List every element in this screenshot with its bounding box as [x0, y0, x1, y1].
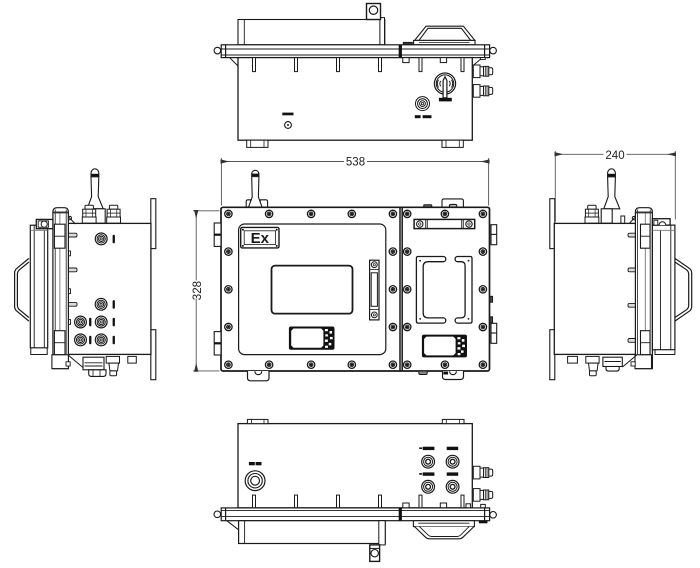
svg-text:538: 538 [346, 157, 365, 169]
svg-text:240: 240 [605, 150, 624, 162]
svg-text:Ex: Ex [251, 230, 270, 247]
svg-text:328: 328 [192, 281, 204, 300]
